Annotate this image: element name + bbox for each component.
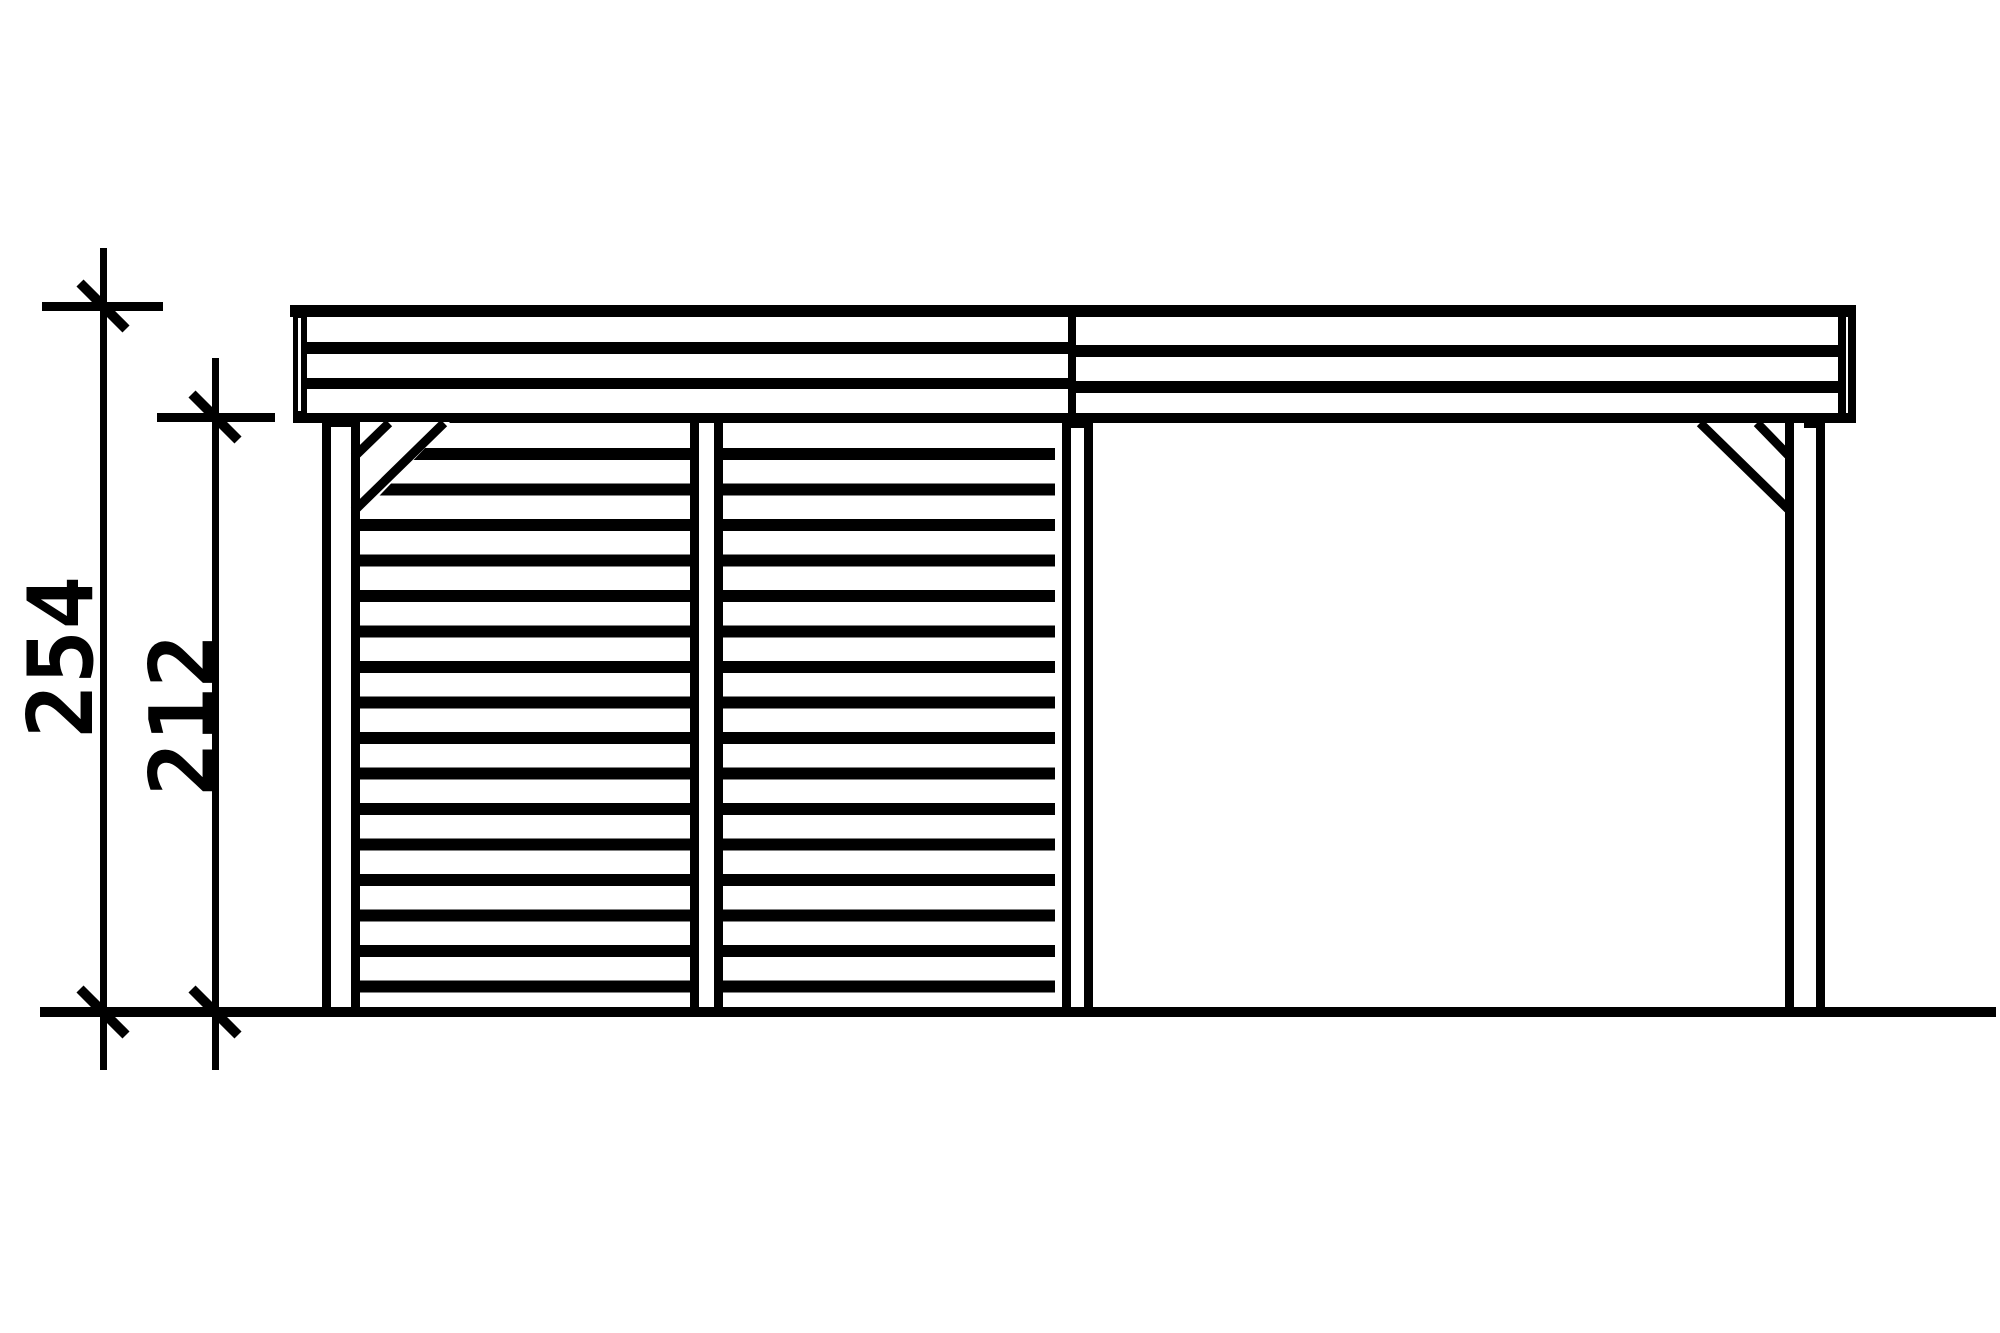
dimension-212-label: 212 [131, 634, 236, 797]
elevation-svg: 254 212 [0, 0, 2000, 1333]
slat-wall-panel-1 [360, 448, 690, 1005]
roof-board-line-right-lower [1076, 381, 1838, 393]
left-post-top-cap [322, 417, 352, 427]
roof-right-inner-edge [1838, 316, 1846, 413]
left-post-left-outline [322, 420, 331, 1012]
panel-divider-stud-left [690, 421, 699, 1012]
middle-post-left-outline [1062, 420, 1071, 1012]
middle-post-top-cap [1062, 418, 1084, 428]
roof-board-line-right-upper [1076, 345, 1838, 357]
roof-top-edge [290, 305, 1856, 317]
dimension-254-label: 254 [9, 576, 114, 739]
roof-board-line-left-upper [307, 342, 1068, 354]
middle-post-right-outline [1084, 420, 1093, 1012]
roof-board-line-left-lower [307, 378, 1068, 389]
roof-right-endcap [1848, 305, 1856, 423]
roof-section-divider [1068, 316, 1076, 414]
ground-line [40, 1007, 1996, 1017]
carport-elevation-drawing: 254 212 [0, 0, 2000, 1333]
roof-left-endcap-gap [298, 318, 301, 411]
panel-divider-stud-right [714, 421, 723, 1012]
right-post-top-cap [1804, 418, 1818, 428]
slat-wall-panel-2 [723, 448, 1055, 1005]
right-post-right-outline [1816, 420, 1825, 1012]
